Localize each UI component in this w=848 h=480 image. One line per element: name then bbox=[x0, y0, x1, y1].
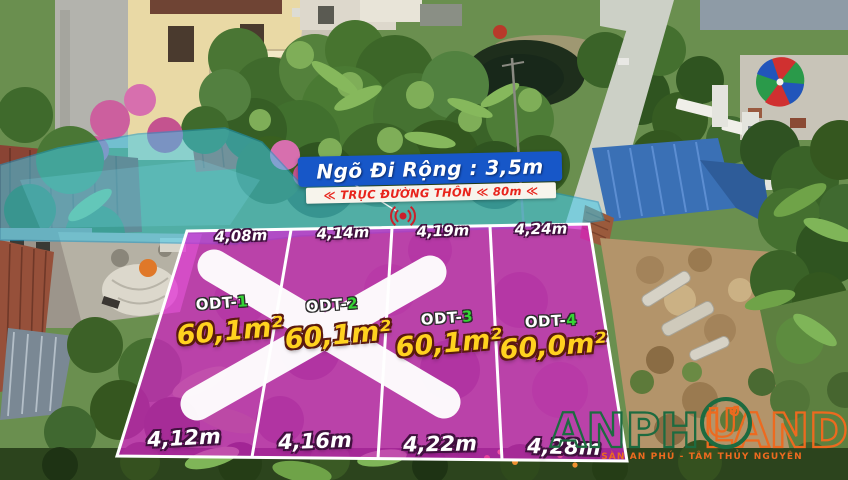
plot-3-top-width: 4,19m bbox=[401, 223, 485, 240]
brand-ring-wrap: Ư bbox=[699, 399, 705, 455]
plot-3-id-prefix: ODT- bbox=[420, 308, 463, 329]
plot-2-id-prefix: ODT- bbox=[305, 295, 348, 316]
plot-3-bottom-width: 4,22m bbox=[390, 433, 490, 456]
plot-3-id-number: 3 bbox=[462, 307, 474, 326]
plot-1-id-prefix: ODT- bbox=[195, 293, 238, 314]
plot-2-id-number: 2 bbox=[347, 294, 359, 313]
plot-4-id-number: 4 bbox=[566, 311, 578, 330]
plot-4-id-prefix: ODT- bbox=[524, 311, 566, 331]
plot-1-id-number: 1 bbox=[237, 292, 249, 311]
plot-1-top-width: 4,08m bbox=[199, 228, 283, 246]
brand-text-left: ANPH bbox=[550, 410, 700, 455]
land-listing-photo: Ngõ Đi Rộng : 3,5m ≪ TRỤC ĐƯỜNG THÔN ≪ 8… bbox=[0, 0, 848, 480]
alley-width-banner: Ngõ Đi Rộng : 3,5m bbox=[298, 151, 563, 187]
plot-4-top-width: 4,24m bbox=[499, 221, 583, 237]
alley-width-label: Ngõ Đi Rộng : 3,5m bbox=[316, 154, 544, 183]
plot-1-bottom-width: 4,12m bbox=[134, 425, 235, 451]
watermark-tagline: SÀN AN PHÚ - TÂM THỦY NGUYÊN bbox=[560, 452, 844, 462]
plot-2-top-width: 4,14m bbox=[301, 225, 385, 243]
watermark-brand: ANPH Ư LAND bbox=[550, 399, 848, 455]
brand-text-mid: Ư bbox=[707, 401, 739, 445]
plot-2-bottom-width: 4,16m bbox=[265, 429, 366, 453]
